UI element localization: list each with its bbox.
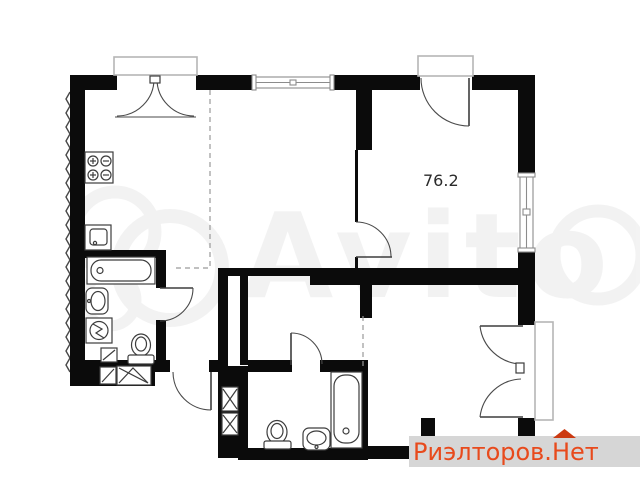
- toilet-symbol: [128, 334, 154, 364]
- ventilation-shaft-symbol: [100, 366, 151, 385]
- window-right: [518, 173, 535, 252]
- wall-mid-thin: [218, 268, 310, 276]
- second-bathtub-symbol: [331, 372, 362, 448]
- wall-entry-jamb: [209, 360, 218, 372]
- balcony-door-top-right: [418, 56, 473, 126]
- vanity-sink-symbol: [86, 288, 108, 314]
- wall-right-a: [518, 90, 535, 173]
- avito-watermark-text: Avito: [242, 187, 614, 325]
- second-vanity-sink-symbol: [303, 428, 330, 450]
- ventilation-shaft-symbol-2: [222, 387, 238, 435]
- wall-top-a: [70, 75, 117, 90]
- wall-top-b: [196, 75, 253, 90]
- realtor-text-before: Риэлторов.: [413, 438, 552, 466]
- bathtub-symbol: [87, 257, 155, 284]
- wall-bath2-top-b: [320, 360, 368, 372]
- wall-bath2-bottom: [238, 448, 368, 460]
- wall-top-c: [333, 75, 420, 90]
- wall-room-thin: [355, 150, 358, 222]
- stove-symbol: [85, 152, 113, 183]
- washing-machine-symbol: [86, 318, 112, 343]
- wall-insulation-zigzag: [66, 92, 70, 372]
- wall-pillar-room: [356, 90, 372, 150]
- room-area-label: 76.2: [423, 171, 459, 190]
- floor-drain-symbol: [101, 348, 117, 362]
- entry-door: [173, 372, 211, 410]
- realtor-accent-letter: Н: [552, 438, 570, 466]
- bathroom2-door: [291, 333, 322, 365]
- wall-bath2-top-a: [248, 360, 292, 372]
- second-toilet-symbol: [264, 421, 291, 450]
- wall-shaft-left: [218, 276, 228, 366]
- wall-bath1-right-upper: [156, 250, 166, 288]
- realtor-text-after: ет: [570, 438, 599, 466]
- wall-left-outer: [70, 75, 85, 375]
- window-top: [252, 75, 334, 90]
- door-handle: [516, 363, 524, 373]
- floor-plan-screenshot: Avito: [0, 0, 640, 480]
- kitchen-sink-symbol: [85, 225, 111, 250]
- wall-hall-left: [240, 276, 248, 365]
- house-roof-icon: [553, 429, 576, 438]
- wall-top-d: [472, 75, 535, 90]
- balcony-door-top-left: [114, 57, 197, 117]
- balcony-door-bottom-right: [480, 322, 553, 420]
- realtor-watermark-text: Риэлторов.Нет: [413, 438, 599, 466]
- floor-plan-canvas: Avito: [0, 0, 640, 480]
- door-handle: [150, 76, 160, 83]
- wall-bedroom-stub: [360, 285, 372, 318]
- wall-bath2-left-column: [218, 366, 248, 458]
- wall-right-b: [518, 252, 535, 325]
- wall-mid-thick: [310, 268, 527, 285]
